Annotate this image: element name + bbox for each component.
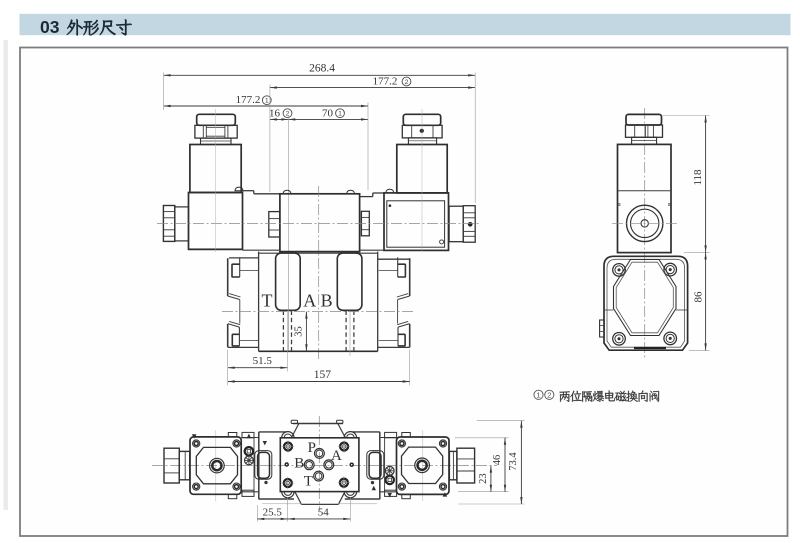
svg-text:25.5: 25.5	[263, 507, 283, 519]
svg-text:70: 70	[322, 108, 334, 120]
svg-text:35: 35	[294, 326, 305, 337]
svg-text:B: B	[294, 456, 304, 472]
svg-text:2: 2	[286, 111, 290, 118]
svg-text:73.4: 73.4	[508, 452, 519, 471]
svg-text:157: 157	[314, 369, 332, 381]
svg-text:2: 2	[405, 79, 409, 86]
svg-text:54: 54	[318, 507, 330, 519]
svg-text:118: 118	[692, 169, 704, 186]
svg-text:2: 2	[547, 391, 551, 400]
svg-text:177.2: 177.2	[236, 94, 261, 106]
svg-text:03: 03	[40, 17, 60, 37]
svg-text:B: B	[321, 290, 333, 310]
svg-text:P: P	[308, 440, 316, 456]
svg-text:A: A	[331, 448, 342, 464]
svg-text:46: 46	[492, 455, 503, 466]
svg-text:268.4: 268.4	[309, 63, 335, 75]
svg-text:1: 1	[338, 111, 342, 118]
svg-text:177.2: 177.2	[373, 75, 398, 87]
svg-text:T: T	[304, 474, 313, 490]
svg-text:1: 1	[265, 98, 269, 105]
svg-text:23: 23	[478, 473, 489, 484]
svg-text:16: 16	[269, 108, 281, 120]
svg-text:86: 86	[693, 291, 705, 303]
svg-text:A: A	[303, 290, 316, 310]
svg-text:1: 1	[536, 391, 540, 400]
svg-text:T: T	[262, 290, 273, 310]
svg-text:51.5: 51.5	[253, 355, 273, 367]
